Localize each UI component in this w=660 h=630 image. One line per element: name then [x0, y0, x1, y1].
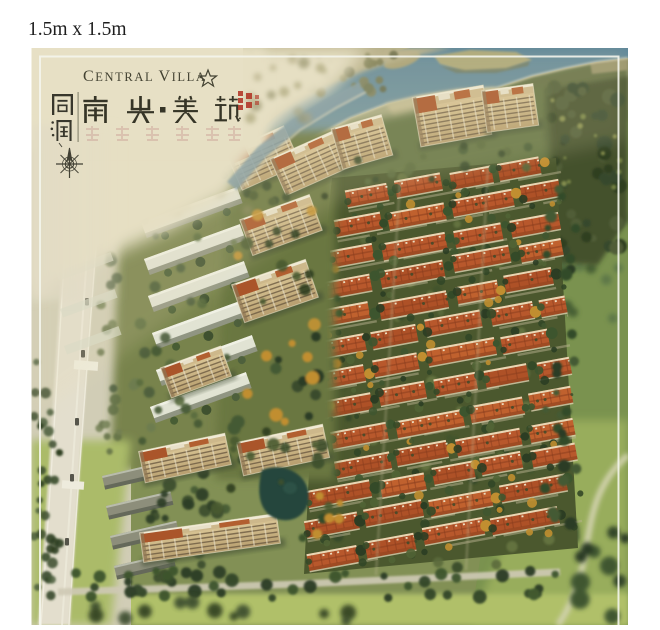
svg-text:1.5m x 1.5m: 1.5m x 1.5m — [28, 19, 127, 40]
